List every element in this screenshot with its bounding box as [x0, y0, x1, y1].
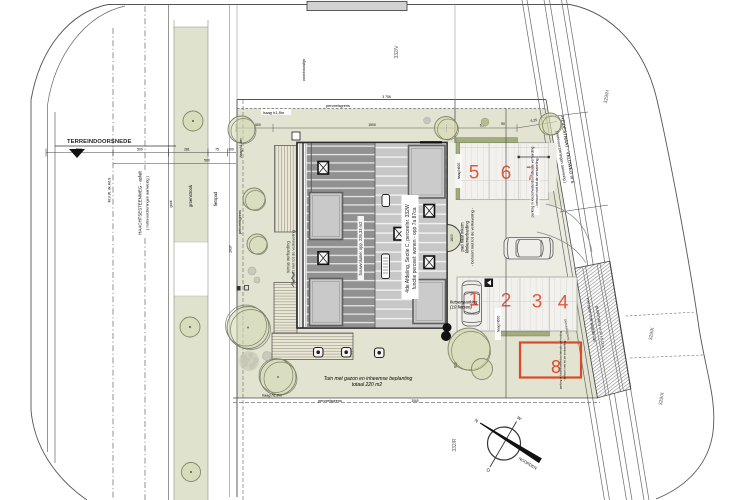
svg-text:behoort niet tot de verkavelin: behoort niet tot de verkaveling: [291, 230, 296, 284]
svg-text:bouwvolume: opp. 226,33 m2: bouwvolume: opp. 226,33 m2: [358, 221, 363, 275]
svg-text:100: 100: [228, 148, 234, 152]
svg-text:haag h1,8m: haag h1,8m: [263, 110, 285, 115]
svg-text:goot: goot: [169, 201, 173, 208]
svg-text:610: 610: [454, 362, 458, 368]
svg-text:voorbouwlijn: voorbouwlijn: [301, 59, 306, 81]
svg-text:281: 281: [184, 148, 190, 152]
svg-text:M.V.W. dk H6,9: M.V.W. dk H6,9: [108, 178, 112, 203]
svg-text:332/V: 332/V: [394, 45, 400, 59]
svg-text:haag h600: haag h600: [457, 163, 461, 180]
svg-text:perceelsgrens: perceelsgrens: [326, 104, 350, 108]
svg-text:HAACHTSESTEENWEG - asfalt: HAACHTSESTEENWEG - asfalt: [138, 171, 143, 235]
svg-text:1500: 1500: [368, 123, 376, 127]
svg-text:- behoort niet tot de verkavel: - behoort niet tot de verkaveling -: [563, 339, 567, 381]
svg-text:5: 5: [469, 163, 480, 184]
svg-text:perceelsgrens: perceelsgrens: [238, 210, 242, 234]
svg-text:TERREINDOORSNEDE: TERREINDOORSNEDE: [67, 139, 131, 145]
svg-text:1600: 1600: [450, 234, 454, 242]
svg-text:fietspad: fietspad: [213, 191, 218, 206]
svg-text:3069: 3069: [411, 399, 418, 403]
svg-text:4: 4: [558, 293, 569, 314]
svg-text:75: 75: [215, 148, 219, 152]
svg-text:functie perceel: wonen - opp 7: functie perceel: wonen - opp 7a 87ca: [412, 207, 418, 289]
svg-text:- behoort niet tot de verkavel: - behoort niet tot de verkaveling -: [470, 207, 475, 266]
svg-text:4de Afdeling, Sectie C, percee: 4de Afdeling, Sectie C, perceelnr. 332W: [405, 204, 411, 293]
svg-text:332/R: 332/R: [452, 438, 458, 452]
svg-text:500: 500: [204, 159, 210, 163]
svg-text:500: 500: [137, 148, 143, 152]
svg-text:perceelsgrens: perceelsgrens: [318, 399, 342, 403]
svg-text:( nutsvoorzieningen aanwezig ): ( nutsvoorzieningen aanwezig ): [145, 175, 150, 230]
svg-text:totaal 220 m2: totaal 220 m2: [352, 382, 383, 388]
svg-text:groenstrook: groenstrook: [188, 184, 193, 207]
svg-text:3 756: 3 756: [382, 95, 391, 99]
svg-text:500: 500: [255, 123, 261, 127]
svg-text:(10 fietsen): (10 fietsen): [450, 305, 473, 310]
svg-text:90: 90: [501, 122, 505, 126]
svg-text:haag h1,8m: haag h1,8m: [262, 394, 282, 398]
svg-text:2637: 2637: [229, 245, 233, 253]
svg-text:haag h600: haag h600: [497, 316, 501, 333]
svg-text:- behoort niet tot de verkavel: - behoort niet tot de verkaveling -: [535, 156, 539, 208]
svg-text:3: 3: [532, 292, 543, 313]
svg-text:haag h1,8m: haag h1,8m: [239, 139, 243, 158]
